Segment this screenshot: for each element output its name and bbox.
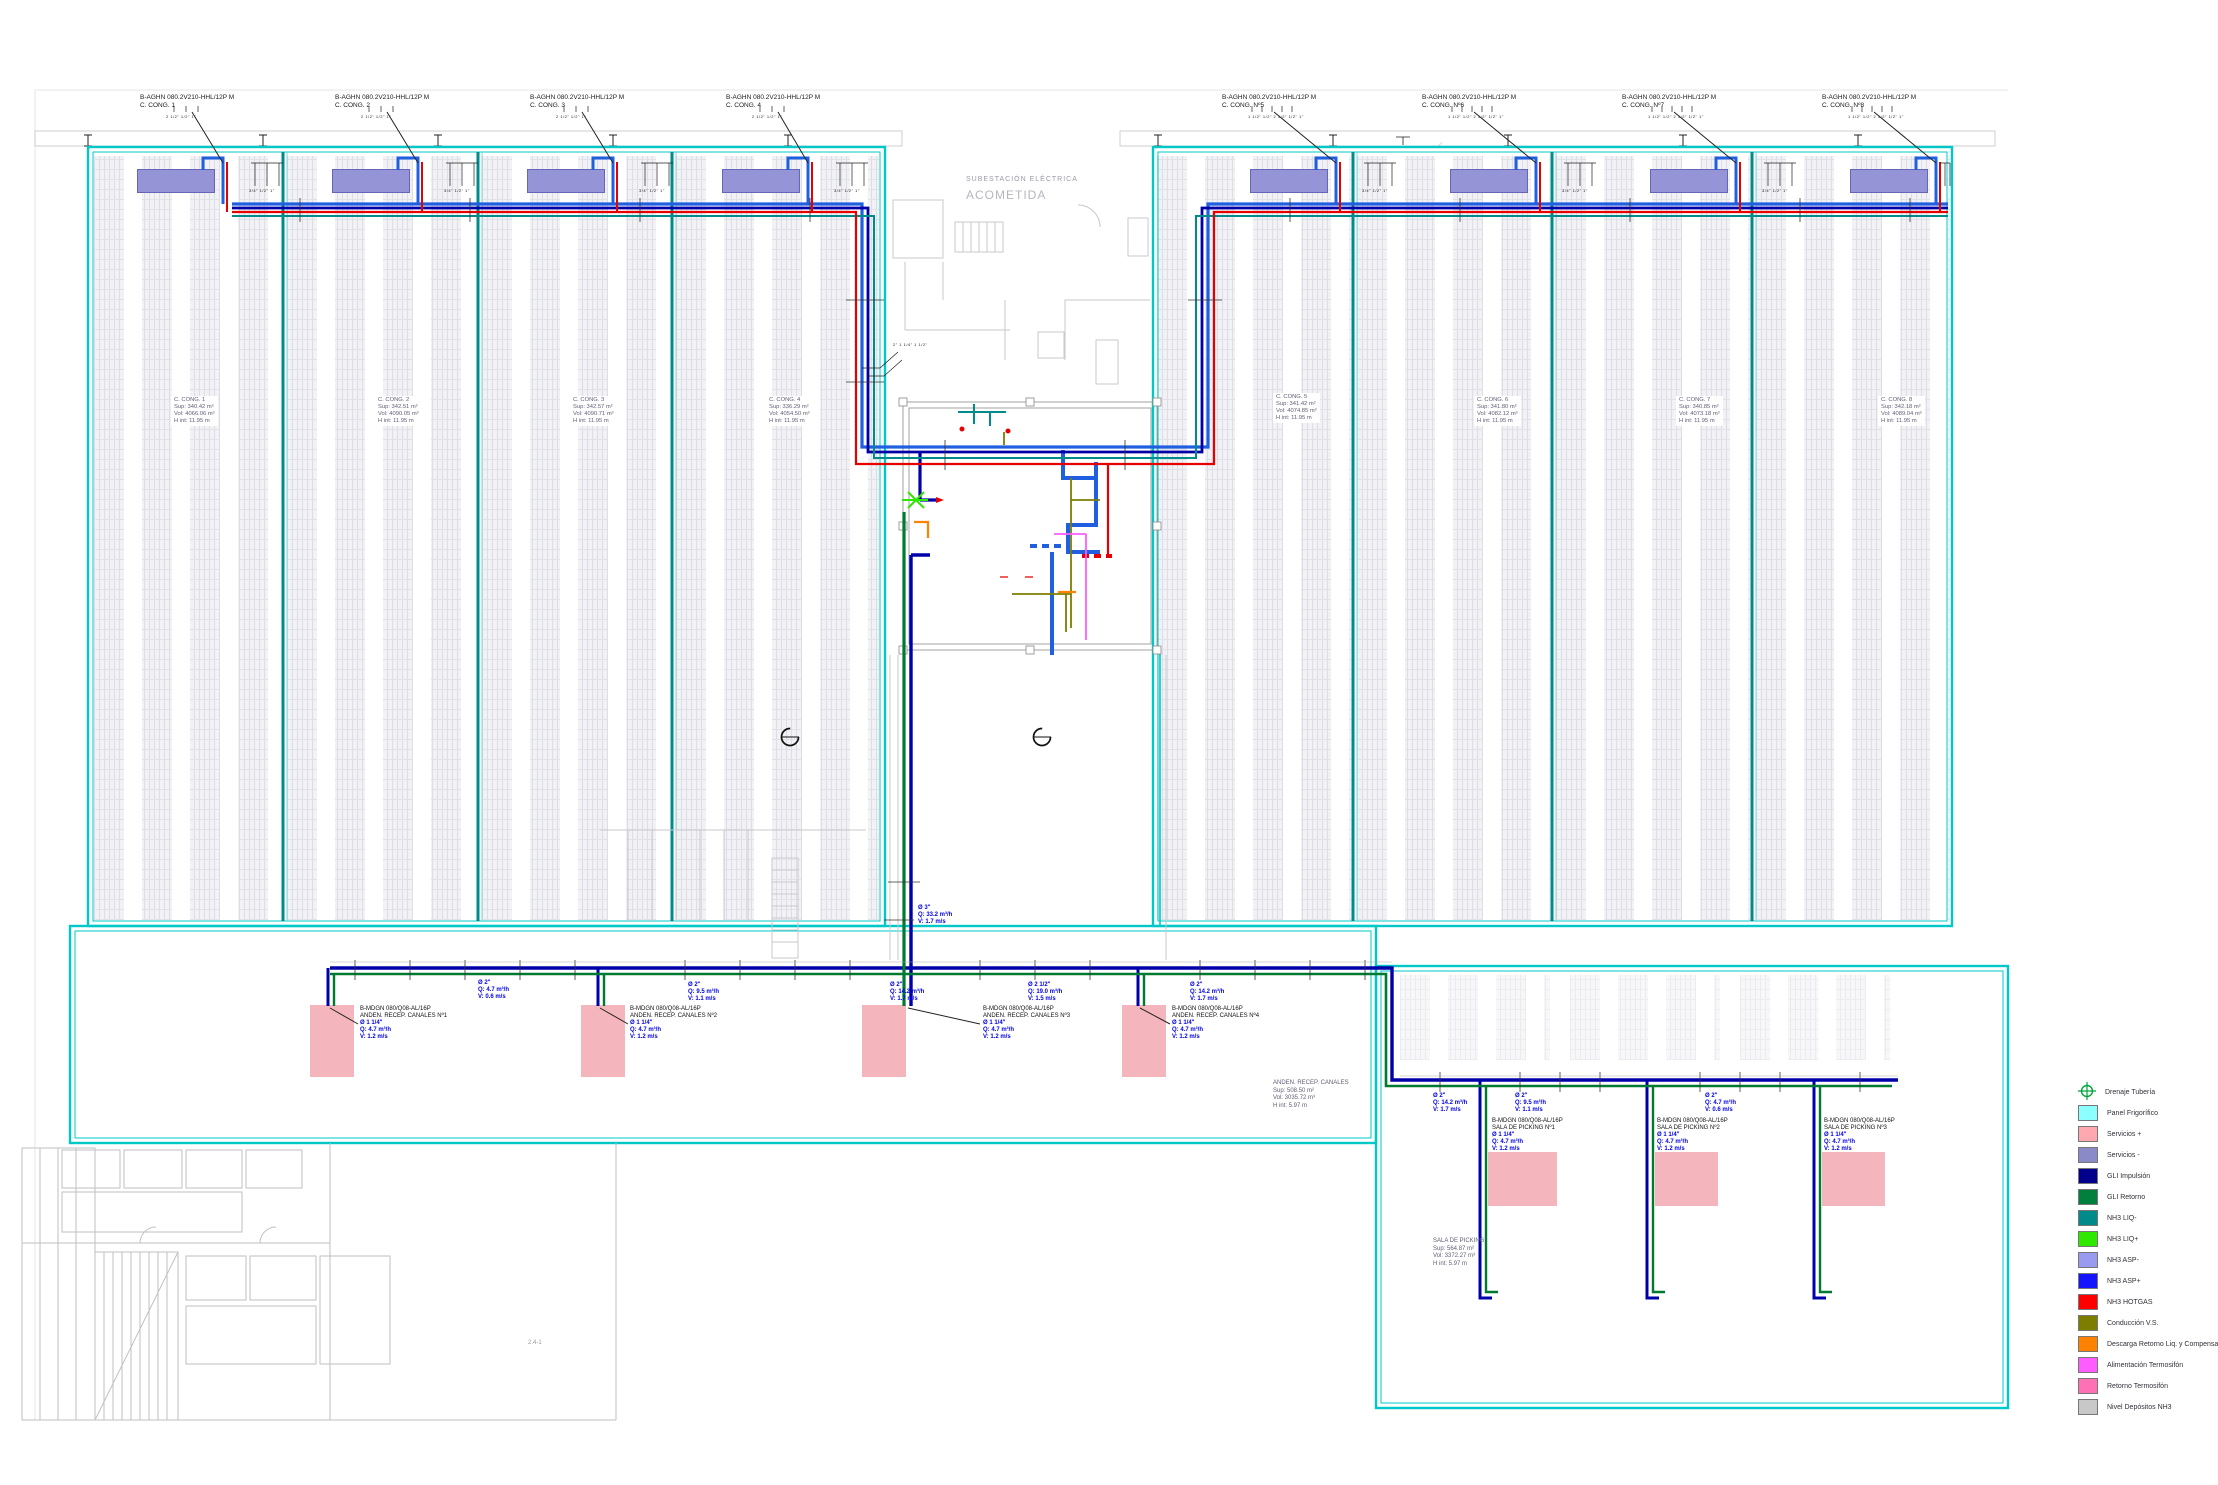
evap-label-1: B-AGHN 080.2V210-HHL/12P MC. CONG. 1 [140, 94, 234, 110]
valve-sizes-3: 3/4" 1/2" 1" [639, 188, 665, 193]
evap-sizes-5: 1 1/2" 1/2" 2 1/2" 1/2" 1" [1248, 114, 1304, 119]
picking-area-label: SALA DE PICKINGSup: 564.87 m²Vol: 3372.2… [1433, 1238, 1484, 1268]
valve-sizes-6: 3/4" 1/2" 1" [1562, 188, 1588, 193]
legend-row-4: GLI Impulsión [2078, 1166, 2150, 1186]
riser-size-note: 2" 1 1/4" 1 1/2" [893, 342, 928, 347]
evap-sizes-7: 1 1/2" 1/2" 2 1/2" 1/2" 1" [1648, 114, 1704, 119]
machine-room [899, 398, 1161, 654]
piping-linework [0, 0, 2218, 1485]
evap-sizes-6: 1 1/2" 1/2" 2 1/2" 1/2" 1" [1448, 114, 1504, 119]
picking-unit-label-1: B-MDGN 080/Q08-AL/16PSALA DE PICKING Nº1… [1492, 1118, 1563, 1153]
legend-swatch [2078, 1252, 2098, 1268]
legend-row-9: NH3 ASP+ [2078, 1271, 2141, 1291]
evap-sizes-1: 2 1/2" 1/2" 1" [166, 114, 196, 119]
drain-icon [2078, 1083, 2096, 1101]
legend-row-6: NH3 LIQ- [2078, 1208, 2137, 1228]
valve-tick-trios [251, 163, 1950, 186]
legend-row-13: Alimentación Termosifón [2078, 1355, 2183, 1375]
legend-swatch [2078, 1168, 2098, 1184]
legend-row-12: Descarga Retorno Liq. y Compensación [2078, 1334, 2218, 1354]
anden-unit-label-4: B-MDGN 080/Q08-AL/16PANDEN. RECEP. CANAL… [1172, 1006, 1259, 1041]
valve-sizes-7: 3/4" 1/2" 1" [1762, 188, 1788, 193]
dock-plan [600, 830, 866, 958]
picking-unit-label-2: B-MDGN 080/Q08-AL/16PSALA DE PICKING Nº2… [1657, 1118, 1728, 1153]
evap-label-3: B-AGHN 080.2V210-HHL/12P MC. CONG. 3 [530, 94, 624, 110]
legend-row-15: Nivel Depósitos NH3 [2078, 1397, 2172, 1417]
legend-swatch [2078, 1399, 2098, 1415]
legend-row-1: Panel Frigorífico [2078, 1103, 2158, 1123]
legend-swatch [2078, 1147, 2098, 1163]
evap-label-2: B-AGHN 080.2V210-HHL/12P MC. CONG. 2 [335, 94, 429, 110]
legend-row-3: Servicios - [2078, 1145, 2140, 1165]
anden-unit-label-3: B-MDGN 080/Q08-AL/16PANDEN. RECEP. CANAL… [983, 1006, 1070, 1041]
pipe-label-anden-1: Ø 2"Q: 4.7 m³/hV: 0.6 m/s [478, 980, 509, 1001]
evap-label-4: B-AGHN 080.2V210-HHL/12P MC. CONG. 4 [726, 94, 820, 110]
legend-swatch [2078, 1336, 2098, 1352]
offices-plan [22, 1143, 616, 1420]
legend-swatch [2078, 1294, 2098, 1310]
pipe-label-anden-3: Ø 2"Q: 14.2 m³/hV: 1.7 m/s [890, 982, 924, 1003]
evap-label-7: B-AGHN 080.2V210-HHL/12P MC. CONG. Nº7 [1622, 94, 1716, 110]
legend-swatch [2078, 1378, 2098, 1394]
valve-sizes-1: 3/4" 1/2" 1" [249, 188, 275, 193]
legend-row-5: GLI Retorno [2078, 1187, 2145, 1207]
chamber-info-1: C. CONG. 1Sup: 340.42 m²Vol: 4066.06 m³H… [171, 396, 218, 426]
pipe-label-anden-5: Ø 2"Q: 14.2 m³/hV: 1.7 m/s [1190, 982, 1224, 1003]
legend-swatch [2078, 1315, 2098, 1331]
legend-row-7: NH3 LIQ+ [2078, 1229, 2138, 1249]
legend-row-14: Retorno Termosifón [2078, 1376, 2168, 1396]
top-wall-hatch [35, 131, 1995, 146]
pipe-label-anden-4: Ø 2 1/2"Q: 19.0 m³/hV: 1.5 m/s [1028, 982, 1062, 1003]
legend-row-drain: Drenaje Tubería [2078, 1082, 2155, 1102]
chamber-info-8: C. CONG. 8Sup: 342.18 m²Vol: 4089.04 m³H… [1878, 396, 1925, 426]
sheet-frame [35, 90, 2008, 1420]
legend-swatch [2078, 1189, 2098, 1205]
evap-label-6: B-AGHN 080.2V210-HHL/12P MC. CONG. Nº6 [1422, 94, 1516, 110]
anden-area-label: ANDEN. RECEP. CANALESSup: 508.50 m²Vol: … [1273, 1080, 1349, 1110]
picking-unit-label-3: B-MDGN 080/Q08-AL/16PSALA DE PICKING Nº3… [1824, 1118, 1895, 1153]
legend-swatch [2078, 1210, 2098, 1226]
valve-sizes-4: 3/4" 1/2" 1" [834, 188, 860, 193]
pipe-label-picking-2: Ø 2"Q: 9.5 m³/hV: 1.1 m/s [1515, 1093, 1546, 1114]
anden-unit-label-2: B-MDGN 080/Q08-AL/16PANDEN. RECEP. CANAL… [630, 1006, 717, 1041]
chamber-info-3: C. CONG. 3Sup: 342.57 m²Vol: 4090.71 m³H… [570, 396, 617, 426]
chamber-info-6: C. CONG. 6Sup: 341.80 m²Vol: 4082.12 m³H… [1474, 396, 1521, 426]
legend-swatch [2078, 1105, 2098, 1121]
section-marker-circles [781, 729, 1051, 746]
evap-sizes-4: 2 1/2" 1/2" 1" [752, 114, 782, 119]
evap-sizes-3: 2 1/2" 1/2" 1" [556, 114, 586, 119]
acometida-title: ACOMETIDA [966, 188, 1046, 202]
chamber-info-4: C. CONG. 4Sup: 336.29 m²Vol: 4054.50 m³H… [766, 396, 813, 426]
legend-swatch [2078, 1231, 2098, 1247]
panel-walls [70, 147, 2008, 1408]
valve-sizes-5: 3/4" 1/2" 1" [1362, 188, 1388, 193]
legend-swatch [2078, 1273, 2098, 1289]
pipe-label-picking-3: Ø 2"Q: 4.7 m³/hV: 0.6 m/s [1705, 1093, 1736, 1114]
sheet-note: 2.4-1 [528, 1340, 542, 1346]
pipe-label-picking-1: Ø 2"Q: 14.2 m³/hV: 1.7 m/s [1433, 1093, 1467, 1114]
legend-row-2: Servicios + [2078, 1124, 2141, 1144]
chamber-info-2: C. CONG. 2Sup: 342.51 m²Vol: 4090.05 m³H… [375, 396, 422, 426]
legend-row-11: Conducción V.S. [2078, 1313, 2159, 1333]
legend-swatch [2078, 1357, 2098, 1373]
anden-unit-label-1: B-MDGN 080/Q08-AL/16PANDEN. RECEP. CANAL… [360, 1006, 447, 1041]
legend-row-8: NH3 ASP- [2078, 1250, 2139, 1270]
drawing-sheet: B-AGHN 080.2V210-HHL/12P MC. CONG. 1 B-A… [0, 0, 2218, 1485]
evap-sizes-2: 2 1/2" 1/2" 1" [361, 114, 391, 119]
chamber-info-7: C. CONG. 7Sup: 340.85 m²Vol: 4073.18 m³H… [1676, 396, 1723, 426]
valve-sizes-2: 3/4" 1/2" 1" [444, 188, 470, 193]
evap-label-8: B-AGHN 080.2V210-HHL/12P MC. CONG. Nº8 [1822, 94, 1916, 110]
legend-swatch [2078, 1126, 2098, 1142]
evap-sizes-8: 1 1/2" 1/2" 2 1/2" 1/2" 1" [1848, 114, 1904, 119]
legend-row-10: NH3 HOTGAS [2078, 1292, 2153, 1312]
pipe-label-riser: Ø 3"Q: 33.2 m³/hV: 1.7 m/s [918, 905, 952, 926]
evap-label-5: B-AGHN 080.2V210-HHL/12P MC. CONG. Nº5 [1222, 94, 1316, 110]
substation-title: SUBESTACIÓN ELÉCTRICA [966, 176, 1078, 183]
chamber-info-5: C. CONG. 5Sup: 341.42 m²Vol: 4074.85 m³H… [1273, 393, 1320, 423]
pipe-label-anden-2: Ø 2"Q: 9.5 m³/hV: 1.1 m/s [688, 982, 719, 1003]
